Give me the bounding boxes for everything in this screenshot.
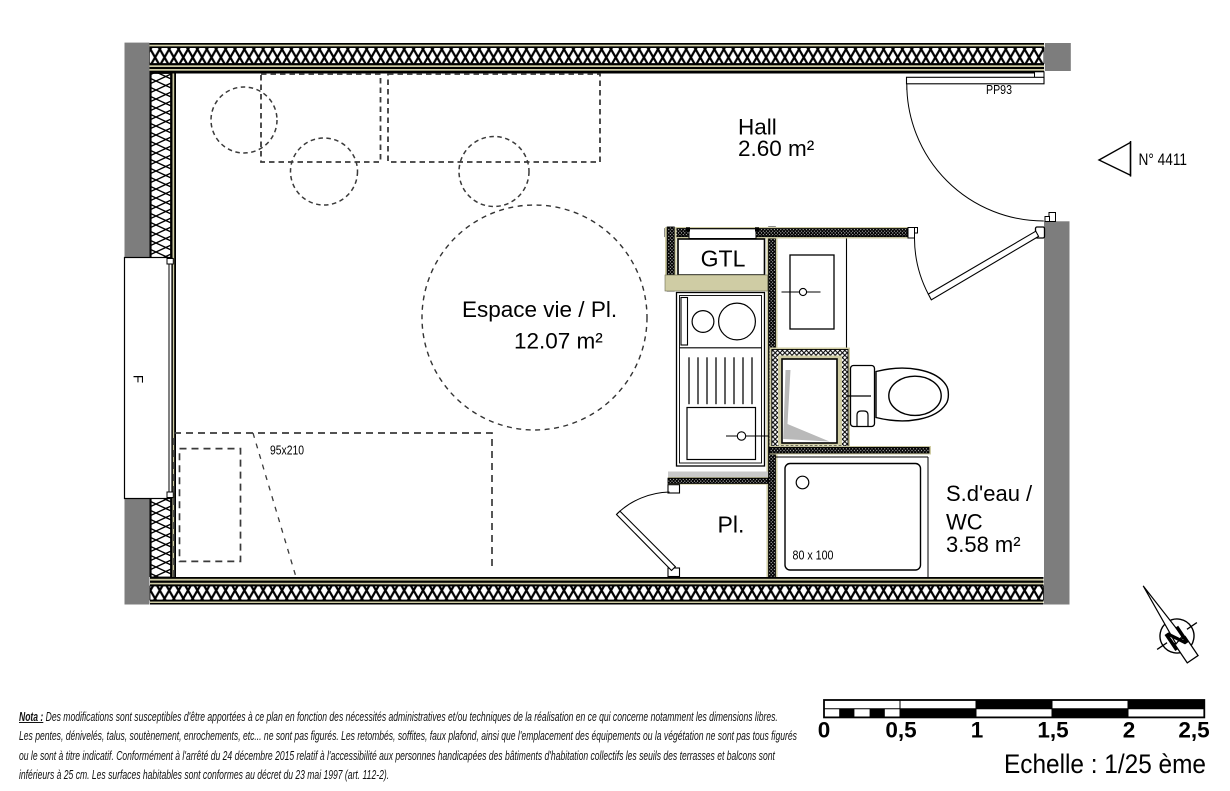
svg-text:1,5: 1,5 bbox=[1037, 718, 1068, 743]
svg-text:N° 4411: N° 4411 bbox=[1139, 150, 1188, 169]
svg-text:F: F bbox=[131, 375, 146, 383]
svg-text:PP93: PP93 bbox=[986, 82, 1012, 97]
svg-text:2: 2 bbox=[1123, 718, 1136, 743]
svg-text:95x210: 95x210 bbox=[270, 443, 304, 458]
svg-text:Echelle : 1/25 ème: Echelle : 1/25 ème bbox=[1004, 749, 1206, 779]
svg-text:Espace vie / Pl.: Espace vie / Pl. bbox=[462, 297, 617, 322]
svg-text:0,5: 0,5 bbox=[885, 718, 916, 743]
svg-text:80 x 100: 80 x 100 bbox=[793, 548, 834, 563]
svg-text:2.60 m²: 2.60 m² bbox=[738, 136, 815, 161]
svg-text:WC: WC bbox=[946, 510, 983, 535]
svg-text:S.d'eau /: S.d'eau / bbox=[946, 481, 1033, 506]
svg-text:GTL: GTL bbox=[701, 246, 746, 272]
svg-text:1: 1 bbox=[971, 718, 984, 743]
svg-text:Pl.: Pl. bbox=[718, 512, 745, 538]
svg-text:2,5: 2,5 bbox=[1178, 718, 1209, 743]
svg-text:12.07 m²: 12.07 m² bbox=[514, 329, 603, 354]
svg-text:3.58 m²: 3.58 m² bbox=[946, 532, 1021, 557]
